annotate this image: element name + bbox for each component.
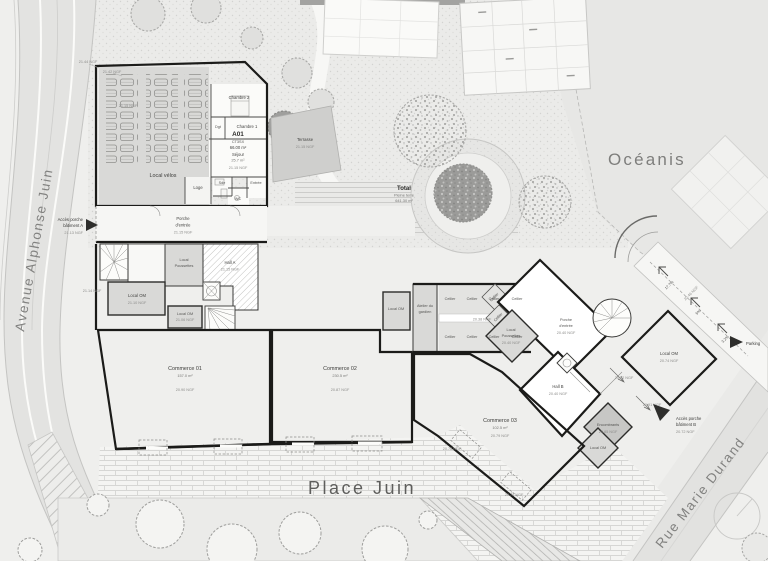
poussettes-b-label2: Poussettes xyxy=(502,334,521,338)
elevator-a xyxy=(203,282,220,300)
svg-text:bâtiment A: bâtiment A xyxy=(63,223,83,228)
porche-b-label1: Porche xyxy=(560,318,572,322)
om-mid-label: Local OM xyxy=(388,307,404,311)
svg-text:66.00 m²: 66.00 m² xyxy=(230,145,247,150)
stair-a2 xyxy=(205,306,235,330)
velos-label: Local vélos xyxy=(150,173,177,179)
chambre1-label: Chambre 1 xyxy=(237,124,258,129)
stair-b-spiral xyxy=(593,299,631,337)
porche-a-label2: d'entrée xyxy=(175,223,191,228)
atelier-label2: gardien xyxy=(419,310,432,314)
hall-a-ngf: 21.15 NGF xyxy=(221,268,240,272)
svg-text:20.72 NGF: 20.72 NGF xyxy=(676,430,695,434)
sde-label: Sde xyxy=(219,181,226,185)
velos-ngf: 21.15 NGF xyxy=(119,104,138,108)
spot-ngf-2142: 21.42 NGF xyxy=(103,70,122,74)
svg-text:Accès porche: Accès porche xyxy=(676,416,702,421)
porche-b-label2: d'entrée xyxy=(559,324,573,328)
terrasse-label: Terrasse xyxy=(297,137,314,142)
poussettes-b-label1: Local xyxy=(506,328,515,332)
terrasse-ngf: 21.15 NGF xyxy=(296,145,315,149)
poussettes-a-label1: Local xyxy=(179,258,188,262)
porche-a-label1: Porche xyxy=(176,216,190,221)
om-b-right-label: Local OM xyxy=(660,351,678,356)
commerce1-ngf: 20.90 NGF xyxy=(176,388,195,392)
commerce3-ngf: 20.79 NGF xyxy=(491,434,510,438)
om-b-bottom-label: Local OM xyxy=(590,446,606,450)
commerce3-label: Commerce 03 xyxy=(483,418,517,424)
porche-a-ngf: 21.15 NGF xyxy=(174,231,193,235)
spot-ngf-2082: 20.82 NGF xyxy=(615,376,634,380)
svg-text:bâtiment B: bâtiment B xyxy=(676,422,696,427)
svg-text:Accès porche: Accès porche xyxy=(58,217,84,222)
hall-a-label: Hall A xyxy=(225,260,236,265)
total-label: Total xyxy=(397,186,411,192)
svg-text:CT3SX: CT3SX xyxy=(232,140,245,144)
poussettes-a-label2: Poussettes xyxy=(175,264,194,268)
svg-text:21.13 NGF: 21.13 NGF xyxy=(64,231,83,235)
svg-text:Cellier: Cellier xyxy=(445,297,456,301)
spot-ngf-2076: 20.76 NGF xyxy=(505,493,524,497)
svg-text:Cellier: Cellier xyxy=(445,335,456,339)
dgt-label: Dgt xyxy=(215,125,222,129)
om1-ngf: 21.10 NGF xyxy=(128,301,147,305)
spot-ngf-2078: 20.78 NGF xyxy=(443,447,462,451)
hall-b-ngf: 20.40 NGF xyxy=(549,392,568,396)
south-green-area xyxy=(18,494,478,561)
commerce3-area: 102.5 m² xyxy=(492,425,508,430)
plan-canvas: Terrasse 21.15 NGF xyxy=(0,0,768,561)
svg-text:Cellier: Cellier xyxy=(467,297,478,301)
commerce2-label: Commerce 02 xyxy=(323,366,357,372)
loge-label: Loge xyxy=(193,185,203,190)
svg-text:Cellier: Cellier xyxy=(489,335,500,339)
om2-label: Local OM xyxy=(177,312,193,316)
entree-label: Entrée xyxy=(250,181,261,185)
om2-ngf: 21.06 NGF xyxy=(176,318,195,322)
porche-b-ngf: 20.40 NGF xyxy=(557,331,576,335)
neighbour-building-north xyxy=(323,0,439,58)
spot-ngf-2114: 21.14 NGF xyxy=(83,289,102,293)
spot-ngf-2144: 21.44 NGF xyxy=(79,60,98,64)
site-plan: Terrasse 21.15 NGF xyxy=(0,0,768,561)
total-area: 641.30 m² xyxy=(395,198,413,203)
commerce2-area: 230.5 m² xyxy=(332,373,348,378)
stair-a xyxy=(100,244,128,280)
svg-text:A01: A01 xyxy=(232,131,244,138)
poussettes-b-ngf: 20.40 NGF xyxy=(502,341,521,345)
chambre2-label: Chambre 2 xyxy=(229,95,250,100)
svg-text:Cellier: Cellier xyxy=(467,335,478,339)
om1-label: Local OM xyxy=(128,293,146,298)
total-sub: Pleine terre xyxy=(394,193,414,198)
atelier-label1: Atelier du xyxy=(417,304,433,308)
oceanis-label: Océanis xyxy=(608,150,686,169)
place-juin-label: Place Juin xyxy=(308,478,416,498)
commerce1-area: 157.0 m² xyxy=(177,373,193,378)
encombrants-ngf: 20.85 NGF xyxy=(599,430,618,434)
wc-label: WC xyxy=(235,197,242,201)
room-terrasse: Terrasse 21.15 NGF xyxy=(271,106,341,182)
commerce1-label: Commerce 01 xyxy=(168,366,202,372)
garden-walkway xyxy=(265,206,415,236)
om-b-right-ngf: 20.74 NGF xyxy=(660,359,679,363)
commerce2-ngf: 20.87 NGF xyxy=(331,388,350,392)
neighbour-building-northeast xyxy=(460,0,591,95)
svg-text:25.7 m²: 25.7 m² xyxy=(231,158,245,163)
svg-text:21.15 NGF: 21.15 NGF xyxy=(229,166,248,170)
svg-text:Parking: Parking xyxy=(746,341,761,346)
svg-text:Cellier: Cellier xyxy=(512,297,523,301)
svg-text:Séjour: Séjour xyxy=(232,152,245,157)
corridor-ngf: 20.38 NGF xyxy=(473,318,492,322)
encombrants-label: Encombrants xyxy=(597,423,619,427)
hall-b-label: Hall B xyxy=(552,384,563,389)
